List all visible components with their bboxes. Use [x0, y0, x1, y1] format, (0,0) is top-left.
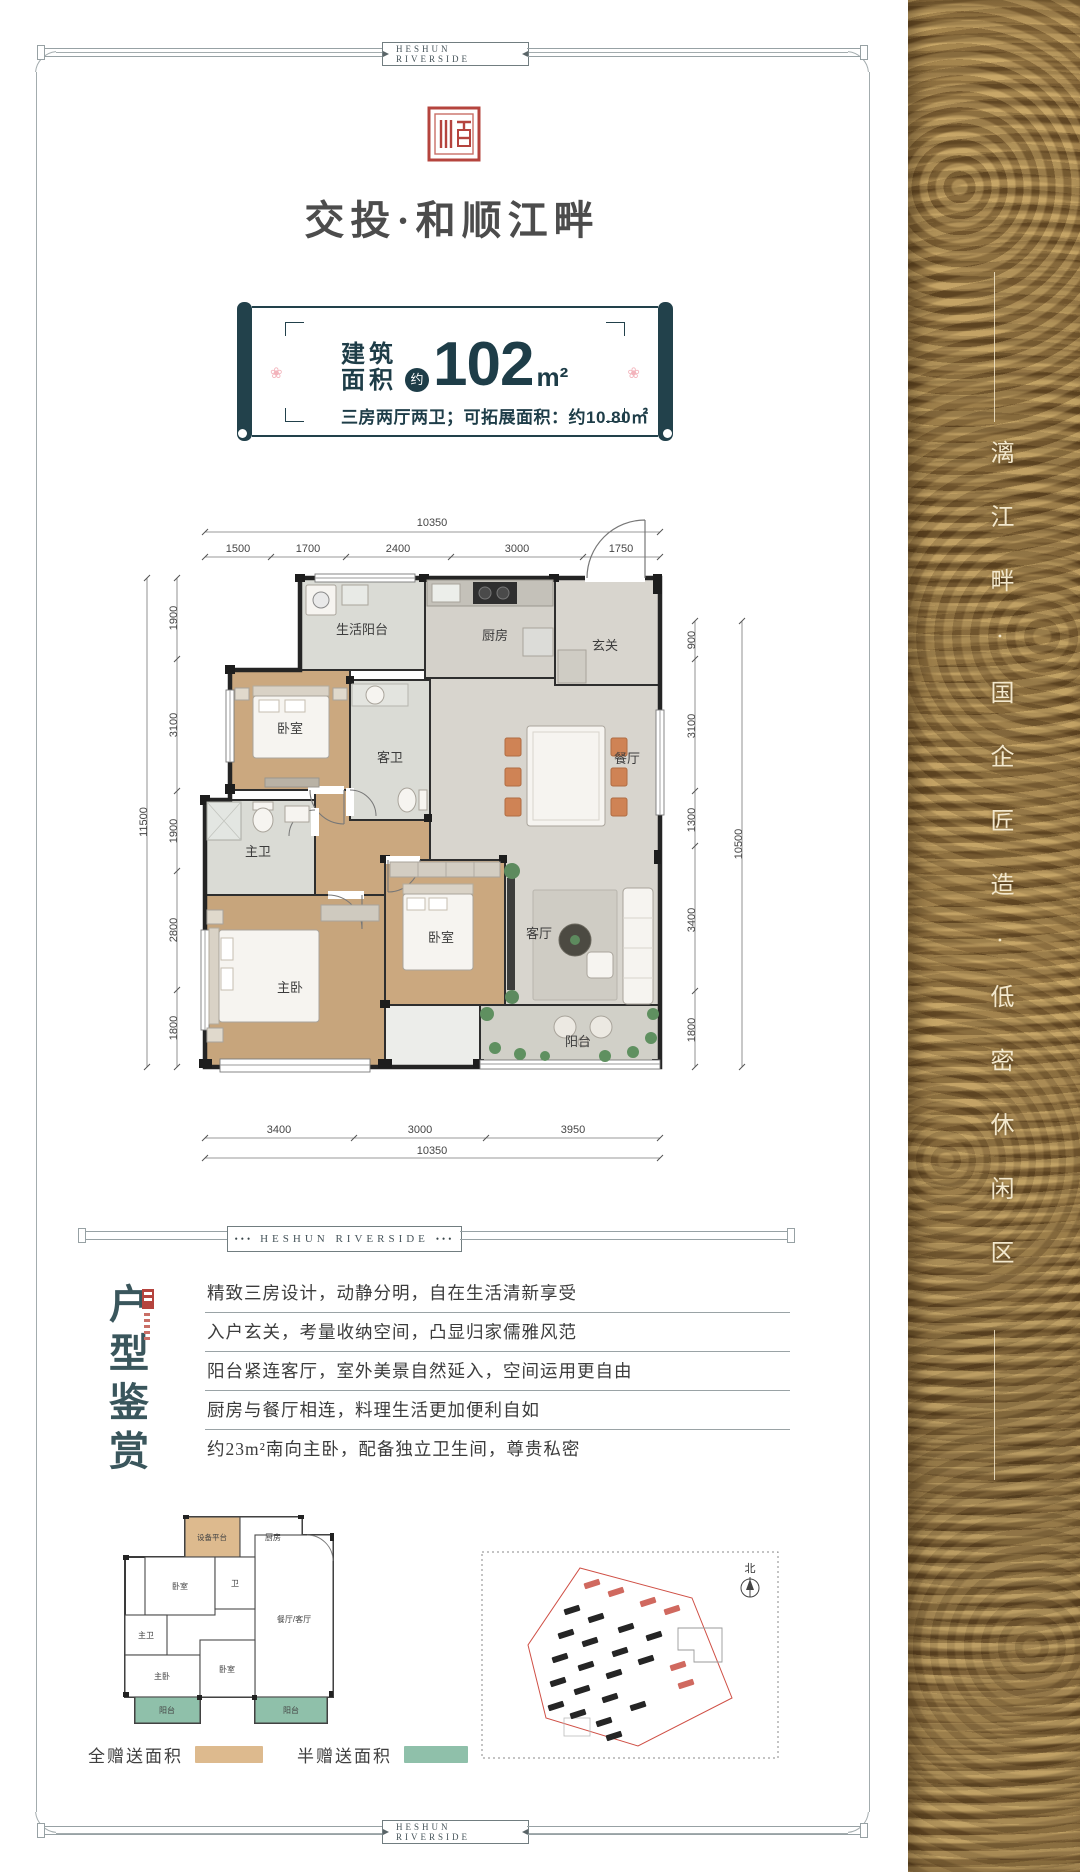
section-seal-icon: [142, 1289, 154, 1309]
mini-label-dining-living: 餐厅/客厅: [277, 1614, 311, 1624]
room-label-balcony: 阳台: [565, 1034, 591, 1049]
footer-rule-left: [44, 1826, 382, 1835]
divider-badge: ••• HESHUN RIVERSIDE •••: [227, 1226, 462, 1252]
scroll-rod-left: [237, 302, 252, 441]
mini-label-bedroom: 卧室: [172, 1581, 188, 1591]
svg-text:3950: 3950: [561, 1124, 585, 1136]
svg-text:1800: 1800: [168, 1016, 180, 1040]
header-rule-right: [527, 48, 861, 57]
poster-root: HESHUN RIVERSIDE 交投·和顺江畔 ❀ ❀ 建筑: [0, 0, 1080, 1872]
legend-label-half: 半赠送面积: [297, 1742, 392, 1767]
divider-dots-right: •••: [436, 1234, 454, 1244]
legend-label-full: 全赠送面积: [88, 1742, 183, 1767]
area-subtitle: 三房两厅两卫；可拓展面积：约10.80㎡: [341, 403, 649, 428]
bracket-icon: [285, 322, 304, 336]
mini-label-equipment: 设备平台: [197, 1532, 227, 1542]
banner-line-bottom: [994, 1330, 995, 1480]
mini-label-master-bath: 主卫: [138, 1630, 154, 1640]
svg-text:10500: 10500: [733, 829, 745, 860]
room-label-foyer: 玄关: [592, 638, 618, 653]
footer-rule-right: [527, 1826, 861, 1835]
room-label-bedroom: 卧室: [277, 721, 303, 736]
arrow-right-icon: [383, 1829, 389, 1835]
legend-swatch-full: [195, 1746, 263, 1763]
room-label-master-bath: 主卫: [245, 844, 271, 859]
site-plan: 北: [480, 1550, 780, 1760]
rule-endcap: [37, 1823, 45, 1838]
divider-badge-label: HESHUN RIVERSIDE: [260, 1233, 429, 1245]
mini-label-master-bedroom: 主卧: [154, 1671, 170, 1681]
mini-label-bath: 卫: [231, 1579, 239, 1588]
bracket-icon: [606, 322, 625, 336]
area-label-line2: 面积: [341, 368, 397, 394]
north-label: 北: [745, 1562, 756, 1575]
area-label: 建筑 面积: [341, 342, 397, 394]
divider-rule-right: [460, 1231, 788, 1240]
header-badge-label: HESHUN RIVERSIDE: [396, 44, 515, 64]
feature-item: 精致三房设计，动静分明，自在生活清新享受: [205, 1274, 790, 1313]
area-label-line1: 建筑: [341, 342, 397, 368]
section-seal-caption: [144, 1313, 150, 1341]
rod-notch: [663, 429, 672, 438]
legend-item-full: 全赠送面积: [88, 1742, 263, 1767]
svg-text:3100: 3100: [686, 714, 698, 738]
svg-text:1700: 1700: [296, 543, 320, 555]
brand-seal-icon: [427, 106, 481, 167]
blossom-icon: ❀: [627, 364, 640, 382]
room-label-service-balcony: 生活阳台: [336, 622, 388, 637]
floor-plan-dims-left: 11500 1900 3100 1900 2800 1800: [138, 575, 180, 1070]
svg-text:3000: 3000: [408, 1124, 432, 1136]
gift-area-legend: 全赠送面积 半赠送面积: [88, 1742, 468, 1767]
svg-text:1750: 1750: [609, 543, 633, 555]
header-badge: HESHUN RIVERSIDE: [382, 42, 529, 66]
rule-endcap: [78, 1228, 86, 1243]
svg-text:11500: 11500: [138, 807, 150, 837]
legend-swatch-half: [404, 1746, 468, 1763]
svg-text:900: 900: [686, 631, 698, 649]
svg-text:1800: 1800: [686, 1018, 698, 1042]
rule-endcap: [860, 45, 868, 60]
floor-plan-dims-top: 10350 1500 1700 2400 3000 1750: [202, 517, 663, 560]
blossom-icon: ❀: [270, 364, 283, 382]
room-label-kitchen: 厨房: [482, 628, 508, 643]
rule-endcap: [787, 1228, 795, 1243]
header-rule-left: [44, 48, 382, 57]
room-label-master-bedroom: 主卧: [277, 980, 303, 995]
svg-text:3000: 3000: [505, 543, 529, 555]
room-label-living: 客厅: [526, 926, 552, 941]
approx-badge: 约: [405, 368, 429, 392]
footer-badge-label: HESHUN RIVERSIDE: [396, 1822, 515, 1842]
svg-text:1500: 1500: [226, 543, 250, 555]
floor-plan-dims-right: 10500 900 3100 1300 3400 1800: [686, 618, 745, 1070]
feature-list: 精致三房设计，动静分明，自在生活清新享受 入户玄关，考量收纳空间，凸显归家儒雅风…: [205, 1274, 790, 1468]
rule-endcap: [860, 1823, 868, 1838]
room-label-bedroom2: 卧室: [428, 930, 454, 945]
svg-text:10350: 10350: [417, 1145, 448, 1157]
svg-text:3400: 3400: [686, 908, 698, 932]
bracket-icon: [285, 408, 304, 422]
divider-rule-left: [85, 1231, 227, 1240]
mini-plan: 设备平台 厨房 卧室 卫 餐厅/客厅 主卫 主卧 卧室 阳台 阳台: [85, 1495, 355, 1735]
area-value-row: 102 m²: [433, 334, 568, 396]
rod-notch: [238, 429, 247, 438]
svg-text:1900: 1900: [168, 819, 180, 843]
mini-label-kitchen: 厨房: [265, 1532, 281, 1542]
feature-item: 约23m²南向主卧，配备独立卫生间，尊贵私密: [205, 1430, 790, 1468]
area-unit: m²: [536, 364, 568, 390]
svg-text:3400: 3400: [267, 1124, 291, 1136]
scroll-rod-right: [658, 302, 673, 441]
area-card: ❀ ❀ 建筑 面积 约 102 m² 三房两厅两卫；可拓展面积：约10.80㎡: [237, 302, 673, 441]
room-label-dining: 餐厅: [614, 751, 640, 766]
banner-vertical-text: 漓江畔·国企匠造·低密休闲区: [982, 440, 1017, 1304]
svg-text:1300: 1300: [686, 808, 698, 832]
legend-item-half: 半赠送面积: [297, 1742, 468, 1767]
floor-plan-dims-bottom: 3400 3000 3950 10350: [202, 1124, 663, 1161]
mini-label-balcony-left: 阳台: [159, 1705, 175, 1715]
room-label-guest-bath: 客卫: [377, 750, 403, 765]
arrow-right-icon: [383, 51, 389, 57]
site-plan-border: [482, 1552, 778, 1758]
svg-text:1900: 1900: [168, 606, 180, 630]
mini-label-bedroom2: 卧室: [219, 1664, 235, 1674]
divider-dots-left: •••: [235, 1234, 253, 1244]
banner-line-top: [994, 272, 995, 422]
svg-text:2800: 2800: [168, 918, 180, 942]
floor-plan: 10350 1500 1700 2400 3000 1750 11500 190…: [135, 500, 795, 1172]
brand-title: 交投·和顺江畔: [0, 188, 904, 246]
card-bottom-rule: [252, 435, 658, 437]
rule-endcap: [37, 45, 45, 60]
svg-text:3100: 3100: [168, 713, 180, 737]
feature-item: 阳台紧连客厅，室外美景自然延入，空间运用更自由: [205, 1352, 790, 1391]
mini-label-balcony-right: 阳台: [283, 1705, 299, 1715]
feature-item: 入户玄关，考量收纳空间，凸显归家儒雅风范: [205, 1313, 790, 1352]
svg-text:10350: 10350: [417, 517, 448, 529]
gold-side-banner: 漓江畔·国企匠造·低密休闲区: [908, 0, 1080, 1872]
svg-text:2400: 2400: [386, 543, 410, 555]
card-top-rule: [252, 306, 658, 308]
footer-badge: HESHUN RIVERSIDE: [382, 1820, 529, 1844]
area-value: 102: [433, 334, 533, 396]
feature-item: 厨房与餐厅相连，料理生活更加便利自如: [205, 1391, 790, 1430]
